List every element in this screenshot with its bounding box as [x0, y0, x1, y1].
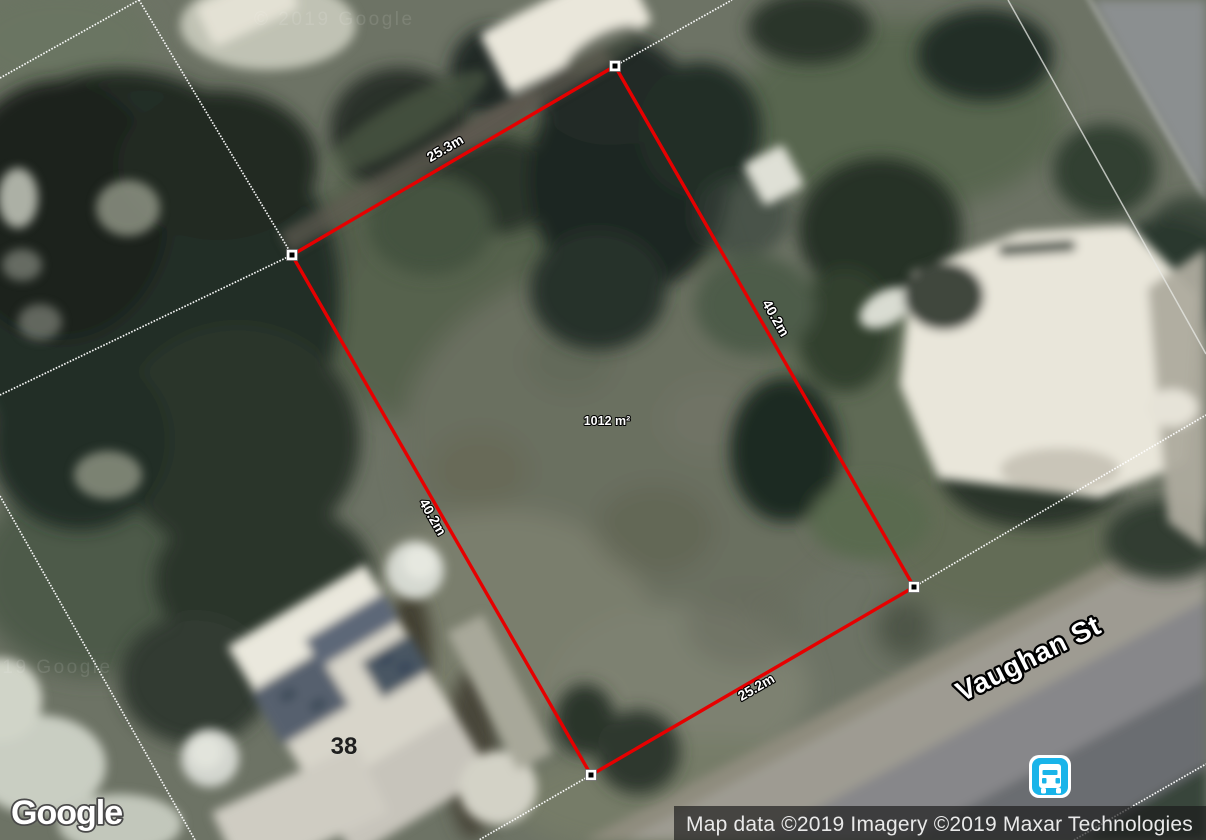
svg-text:Google: Google [11, 794, 122, 832]
svg-text:38: 38 [331, 733, 358, 760]
svg-text:Map data ©2019 Imagery ©2019: Map data ©2019 Imagery ©2019 Maxar Techn… [686, 813, 1193, 836]
svg-text:1012 m²: 1012 m² [584, 414, 631, 428]
svg-text:© 2019 Google: © 2019 Google [254, 9, 415, 30]
svg-text:© 2019 Google: © 2019 Google [0, 657, 113, 678]
